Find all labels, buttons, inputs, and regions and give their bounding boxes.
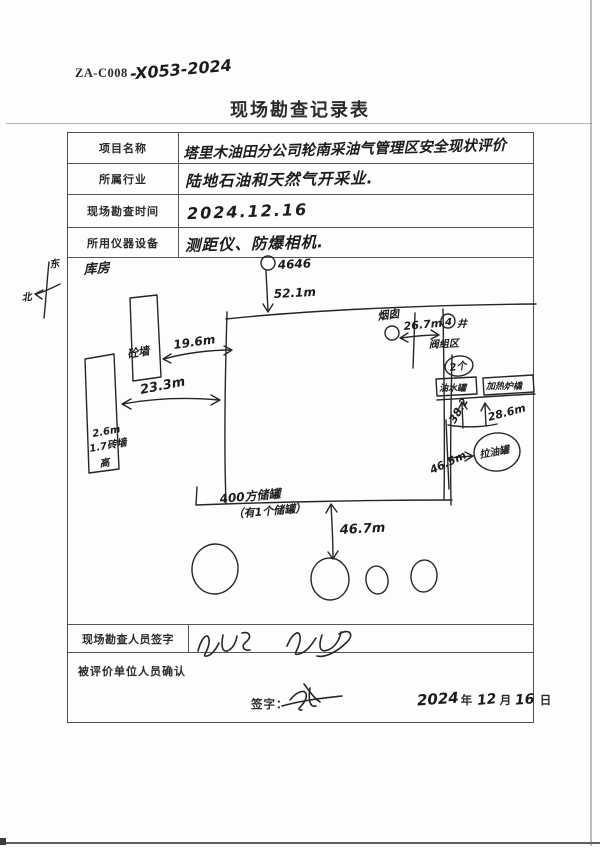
date-day-unit: 日: [540, 692, 552, 708]
confirmation-date: 2024 年 12 月 16 日: [417, 690, 551, 708]
field-label-instruments: 所用仪器设备: [68, 228, 179, 257]
date-year-unit: 年: [461, 692, 473, 708]
handwritten-project-name: 塔里木油田分公司轮南采油气管理区安全现状评价: [183, 133, 507, 162]
field-label-unit-confirmation: 被评价单位人员确认: [78, 663, 186, 679]
sign-prefix-label: 签字：: [251, 696, 289, 712]
compass-char-top: 东: [48, 257, 62, 271]
doc-code-printed: ZA-C008: [75, 66, 128, 81]
handwritten-industry: 陆地石油和天然气开采业.: [185, 166, 374, 191]
handwritten-instruments: 测距仪、防爆相机.: [185, 230, 324, 256]
field-label-industry: 所属行业: [68, 164, 179, 194]
field-label-project-name: 项目名称: [68, 133, 179, 163]
header-rule: [6, 123, 592, 124]
compass-arrow-line: [36, 284, 60, 294]
row-instruments: 所用仪器设备 测距仪、防爆相机.: [68, 228, 533, 258]
row-unit-confirmation: 被评价单位人员确认 签字： 2024 年 12 月 16 日: [68, 653, 533, 724]
row-industry: 所属行业 陆地石油和天然气开采业.: [68, 164, 533, 195]
survey-form-table: 项目名称 塔里木油田分公司轮南采油气管理区安全现状评价 所属行业 陆地石油和天然…: [67, 132, 534, 723]
row-project-name: 项目名称 塔里木油田分公司轮南采油气管理区安全现状评价: [68, 133, 533, 164]
date-year-handwritten: 2024: [416, 689, 459, 710]
row-surveyor-signatures: 现场勘查人员签字: [68, 625, 533, 653]
row-survey-time: 现场勘查时间 2024.12.16: [68, 195, 533, 228]
handwritten-survey-time: 2024.12.16: [187, 199, 309, 222]
compass-arrowhead: [35, 290, 43, 299]
scanned-document-page: ZA-C008 -X053-2024 现场勘查记录表 项目名称 塔里木油田分公司…: [0, 0, 600, 848]
field-label-survey-time: 现场勘查时间: [68, 195, 179, 227]
scan-edge-right: [590, 0, 592, 846]
date-month-unit: 月: [500, 692, 512, 708]
field-label-surveyor-signatures: 现场勘查人员签字: [68, 625, 189, 652]
scan-edge-bottom: [0, 842, 600, 844]
compass-stem-line: [44, 262, 49, 318]
doc-code-handwritten: -X053-2024: [129, 56, 232, 84]
page-title: 现场勘查记录表: [0, 96, 600, 122]
scan-corner-mark: [0, 838, 6, 845]
document-code: ZA-C008 -X053-2024: [75, 66, 232, 81]
date-month-handwritten: 12: [476, 691, 497, 709]
site-sketch-cell: [68, 258, 533, 625]
date-day-handwritten: 16: [515, 691, 536, 708]
compass-char-bottom: 北: [21, 291, 34, 304]
